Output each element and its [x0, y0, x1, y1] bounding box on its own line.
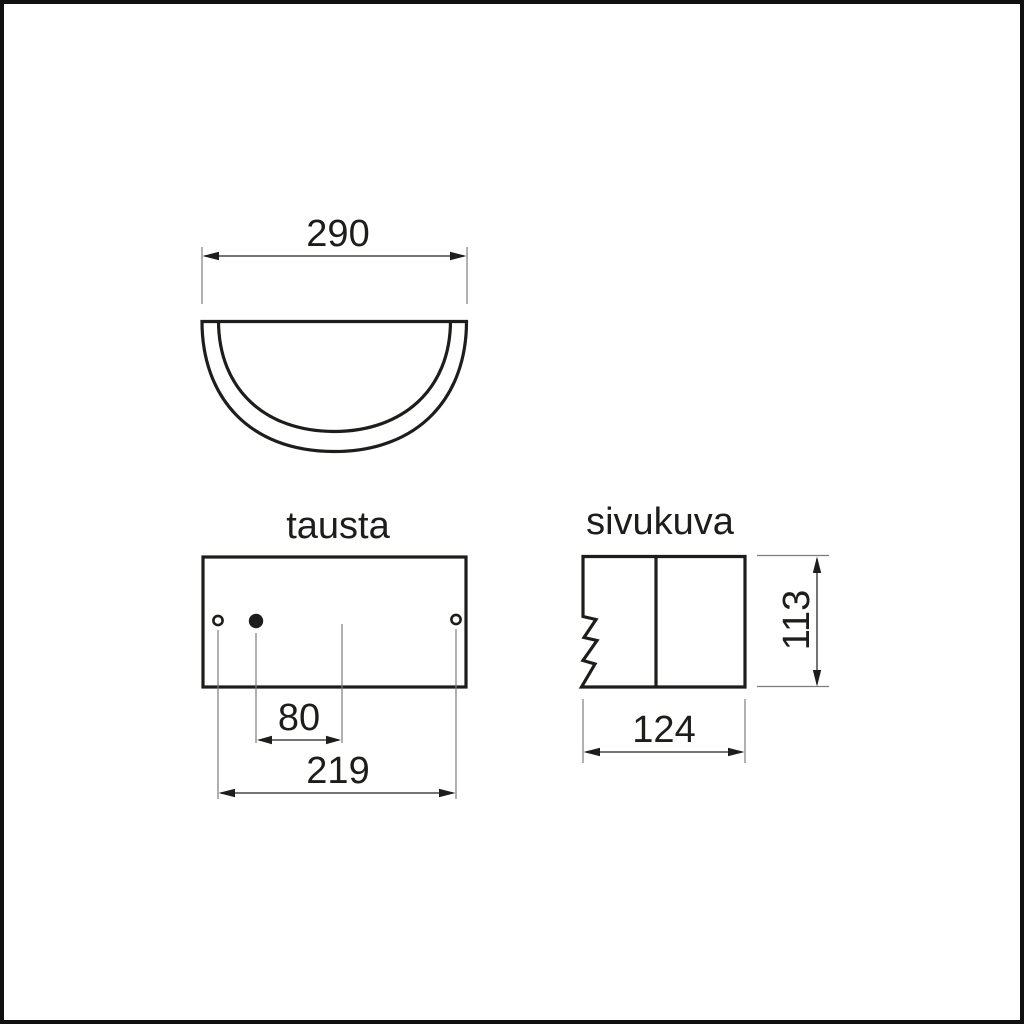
dim-113-arrow-down-icon [813, 670, 821, 687]
side-view: sivukuva 113 124 [582, 501, 830, 763]
mounting-hole-left [213, 616, 222, 625]
dimension-113: 113 [757, 556, 829, 687]
dimension-drawing: 290 tausta 80 [0, 0, 1024, 1024]
dim-290-label: 290 [306, 213, 369, 255]
dim-290-arrow-right-icon [450, 252, 467, 260]
dim-80-label: 80 [278, 697, 320, 739]
dimension-80: 80 [257, 697, 341, 744]
dim-80-arrow-right-icon [326, 736, 341, 744]
top-view: 290 [202, 213, 467, 452]
dimension-290: 290 [202, 213, 467, 304]
dim-113-arrow-up-icon [813, 557, 821, 574]
side-view-title: sivukuva [586, 501, 735, 543]
cable-entry-dot [249, 614, 263, 628]
back-view-outline [203, 557, 466, 687]
back-view: tausta 80 219 [203, 505, 466, 799]
dim-124-label: 124 [632, 709, 695, 751]
dim-124-arrow-left-icon [584, 748, 601, 756]
side-view-outline-with-break-line [582, 557, 746, 688]
top-view-inner-outline [219, 321, 451, 432]
technical-drawing-page: 290 tausta 80 [0, 0, 1024, 1024]
dim-80-arrow-left-icon [257, 736, 272, 744]
mounting-hole-right [451, 615, 460, 624]
dim-290-arrow-left-icon [203, 252, 220, 260]
dim-219-label: 219 [306, 750, 369, 792]
dimension-124: 124 [583, 699, 745, 763]
back-view-title: tausta [286, 505, 390, 547]
dim-219-arrow-right-icon [439, 789, 456, 797]
dim-219-arrow-left-icon [219, 789, 236, 797]
dim-113-label: 113 [776, 590, 818, 651]
dimension-219: 219 [219, 750, 456, 797]
dim-124-arrow-right-icon [728, 748, 745, 756]
